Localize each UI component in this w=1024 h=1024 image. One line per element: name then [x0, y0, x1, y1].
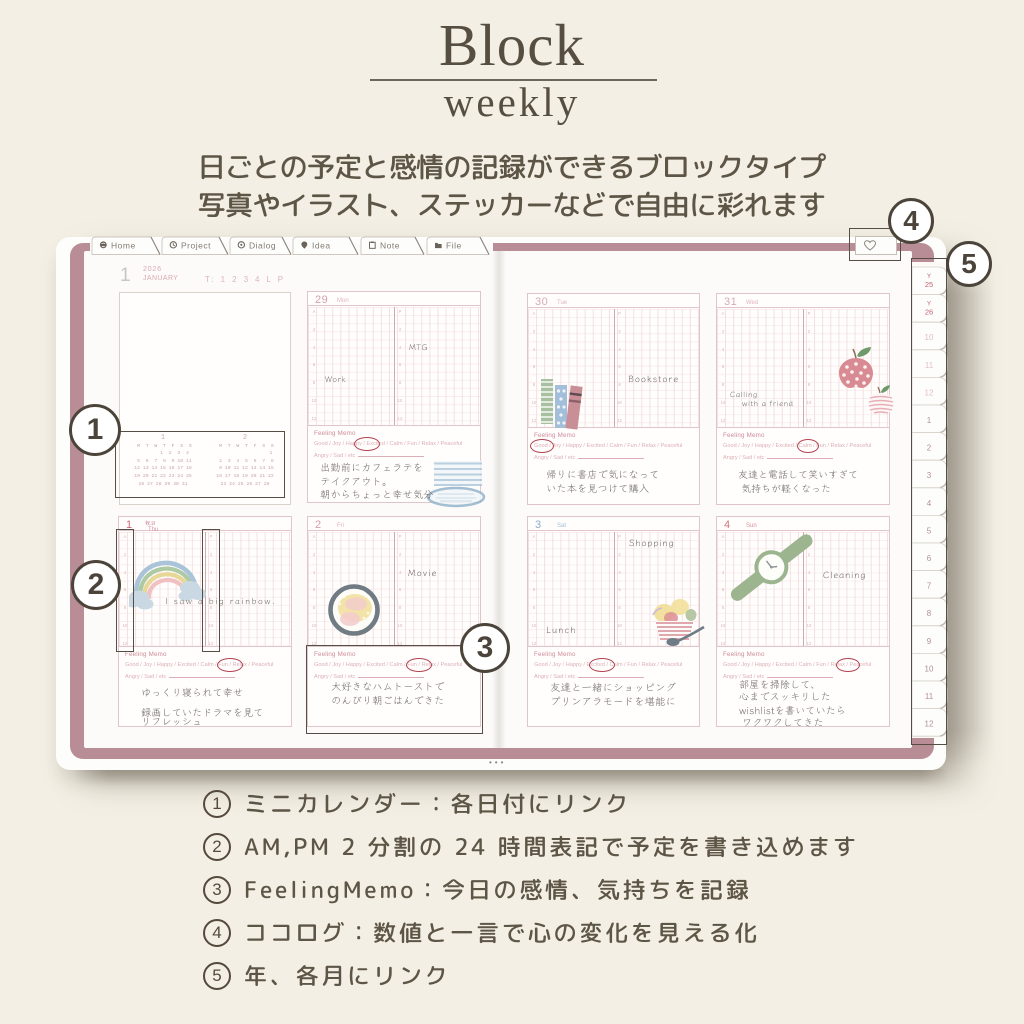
svg-text:Idea: Idea — [312, 241, 331, 251]
svg-text:Dialog: Dialog — [249, 241, 276, 251]
svg-text:Note: Note — [380, 241, 400, 251]
svg-text:Project: Project — [181, 241, 211, 251]
svg-text:File: File — [446, 241, 462, 251]
svg-text:Home: Home — [111, 241, 136, 251]
